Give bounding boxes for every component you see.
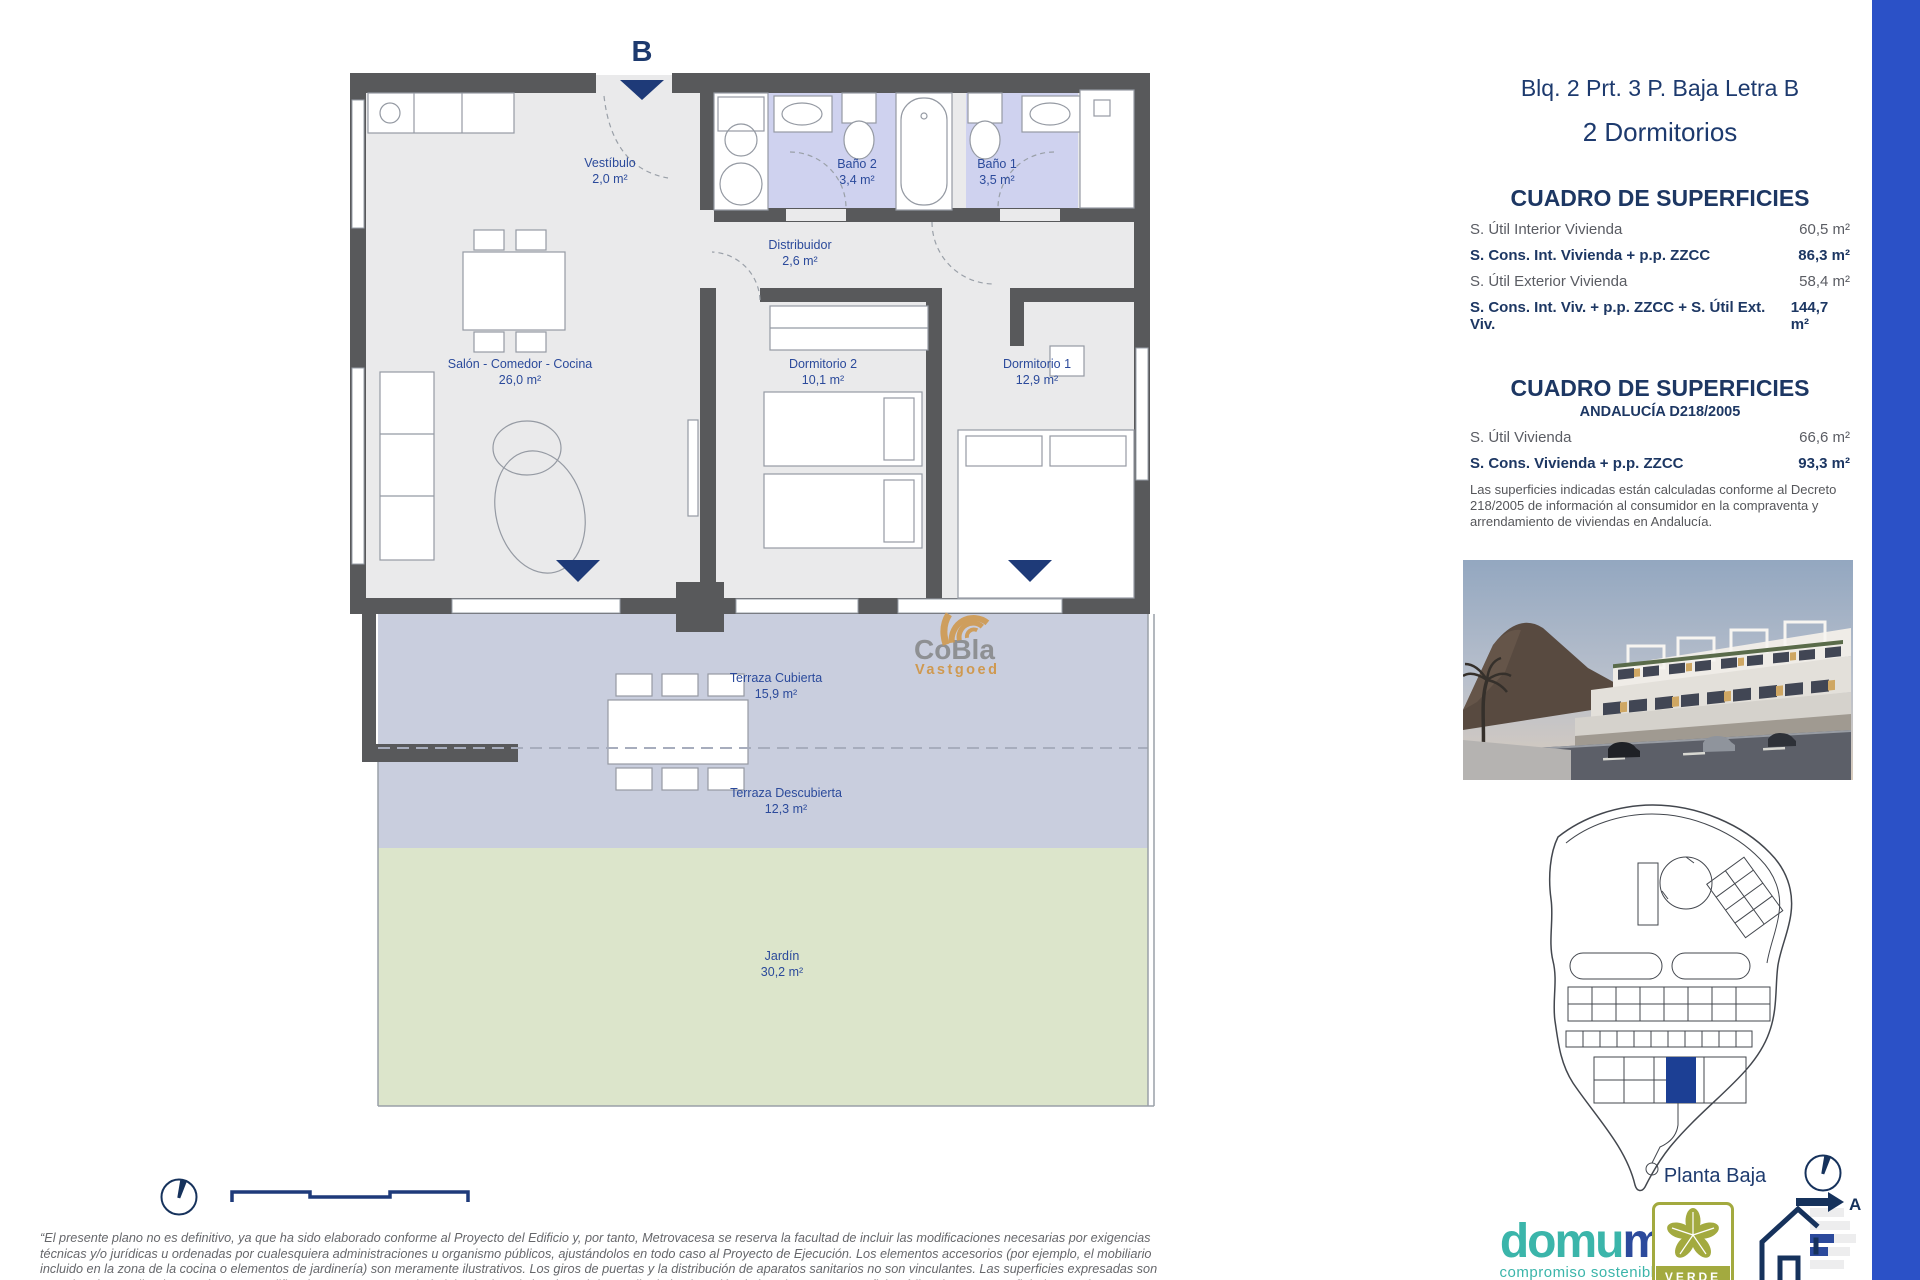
room-label-vestibulo: Vestíbulo 2,0 m² (535, 155, 685, 187)
building-render-photo (1463, 560, 1853, 780)
cobla-watermark: CoBla Vastgoed (912, 592, 1062, 678)
rating-letter: A (1849, 1195, 1861, 1214)
room-area: 3,5 m² (922, 172, 1072, 188)
room-area: 15,9 m² (701, 686, 851, 702)
unit-subtitle: 2 Dormitorios (1470, 117, 1850, 148)
row-label: S. Cons. Int. Viv. + p.p. ZZCC + S. Útil… (1470, 299, 1791, 333)
room-name: Terraza Descubierta (711, 785, 861, 801)
row-value: 60,5 m² (1799, 221, 1850, 238)
row-label: S. Útil Exterior Vivienda (1470, 273, 1627, 290)
unit-title: Blq. 2 Prt. 3 P. Baja Letra B (1470, 75, 1850, 102)
scale-bar (230, 1184, 472, 1208)
room-name: Distribuidor (725, 237, 875, 253)
row-value: 93,3 m² (1798, 455, 1850, 472)
table-row: S. Útil Interior Vivienda 60,5 m² (1470, 221, 1850, 238)
verde-certification-logo: VERDE (1652, 1202, 1734, 1280)
room-label-bano1: Baño 1 3,5 m² (922, 156, 1072, 188)
room-area: 12,9 m² (962, 372, 1112, 388)
table-row: S. Cons. Int. Viv. + p.p. ZZCC + S. Útil… (1470, 299, 1850, 333)
table-row: S. Cons. Int. Vivienda + p.p. ZZCC 86,3 … (1470, 247, 1850, 264)
row-label: S. Cons. Vivienda + p.p. ZZCC (1470, 455, 1684, 472)
room-area: 12,3 m² (711, 801, 861, 817)
room-label-bano2: Baño 2 3,4 m² (782, 156, 932, 188)
info-panel: Blq. 2 Prt. 3 P. Baja Letra B 2 Dormitor… (1470, 75, 1850, 530)
highlighted-unit (1666, 1057, 1696, 1103)
surfaces-andalucia-table: S. Útil Vivienda 66,6 m² S. Cons. Vivien… (1470, 429, 1850, 472)
room-label-terraza-cubierta: Terraza Cubierta 15,9 m² (701, 670, 851, 702)
entrance-label: B (618, 36, 666, 69)
room-name: Dormitorio 2 (748, 356, 898, 372)
house-outline (1762, 1209, 1816, 1280)
room-label-dormitorio1: Dormitorio 1 12,9 m² (962, 356, 1112, 388)
row-label: S. Útil Interior Vivienda (1470, 221, 1622, 238)
surfaces-table: S. Útil Interior Vivienda 60,5 m² S. Con… (1470, 221, 1850, 333)
room-area: 3,4 m² (782, 172, 932, 188)
room-name: Dormitorio 1 (962, 356, 1112, 372)
floor-name-label: Planta Baja (1625, 1165, 1805, 1188)
room-name: Vestíbulo (535, 155, 685, 171)
row-value: 144,7 m² (1791, 299, 1850, 333)
room-label-salon: Salón - Comedor - Cocina 26,0 m² (420, 356, 620, 388)
cobla-fingerprint-icon (934, 592, 998, 648)
room-area: 10,1 m² (748, 372, 898, 388)
room-area: 30,2 m² (707, 964, 857, 980)
surfaces-andalucia-subheading: ANDALUCÍA D218/2005 (1470, 404, 1850, 420)
table-row: S. Cons. Vivienda + p.p. ZZCC 93,3 m² (1470, 455, 1850, 472)
room-name: Jardín (707, 948, 857, 964)
room-name: Baño 1 (922, 156, 1072, 172)
room-name: Terraza Cubierta (701, 670, 851, 686)
room-area: 26,0 m² (420, 372, 620, 388)
verde-label: VERDE (1665, 1270, 1721, 1280)
room-label-dormitorio2: Dormitorio 2 10,1 m² (748, 356, 898, 388)
site-outline (1550, 805, 1792, 1191)
surfaces-andalucia-heading: CUADRO DE SUPERFICIES (1470, 375, 1850, 402)
room-name: Baño 2 (782, 156, 932, 172)
row-label: S. Útil Vivienda (1470, 429, 1571, 446)
room-label-distribuidor: Distribuidor 2,6 m² (725, 237, 875, 269)
surfaces-heading: CUADRO DE SUPERFICIES (1470, 185, 1850, 212)
room-label-jardin: Jardín 30,2 m² (707, 948, 857, 980)
room-area: 2,0 m² (535, 171, 685, 187)
plan-sheet-page: B Vestíbulo 2,0 m² Baño 2 3,4 m² Baño 1 … (0, 0, 1920, 1280)
energy-rating-icon: A (1752, 1192, 1867, 1280)
north-compass-icon (1800, 1150, 1846, 1196)
legal-disclaimer: “El presente plano no es definitivo, ya … (40, 1231, 1175, 1280)
row-label: S. Cons. Int. Vivienda + p.p. ZZCC (1470, 247, 1710, 264)
table-row: S. Útil Exterior Vivienda 58,4 m² (1470, 273, 1850, 290)
right-accent-bar (1872, 0, 1920, 1280)
domum-wordmark-teal: domu (1500, 1215, 1623, 1268)
room-name: Salón - Comedor - Cocina (420, 356, 620, 372)
table-row: S. Útil Vivienda 66,6 m² (1470, 429, 1850, 446)
row-value: 58,4 m² (1799, 273, 1850, 290)
row-value: 66,6 m² (1799, 429, 1850, 446)
room-label-terraza-descubierta: Terraza Descubierta 12,3 m² (711, 785, 861, 817)
north-compass-icon (156, 1174, 202, 1220)
row-value: 86,3 m² (1798, 247, 1850, 264)
site-plan (1538, 795, 1808, 1195)
decree-note: Las superficies indicadas están calculad… (1470, 482, 1850, 530)
room-area: 2,6 m² (725, 253, 875, 269)
vastgoed-wordmark: Vastgoed (915, 662, 1062, 678)
